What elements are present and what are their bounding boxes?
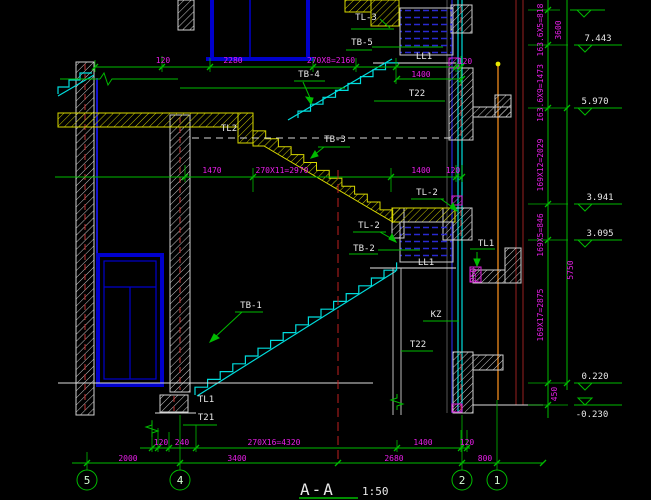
- elevation-symbols: [570, 10, 622, 405]
- mid-landing-slab: [392, 208, 455, 222]
- cad-section-drawing: 5421 TL-3TB-5LL1T22TB-4TL2TB-3TL-2TL-2TB…: [0, 0, 651, 500]
- dimension-label: 2280: [223, 56, 242, 65]
- dimension-label: 2000: [118, 454, 137, 463]
- dimension-label: 169X5=846: [536, 213, 545, 257]
- tb1-soffit: [197, 271, 396, 396]
- dimension-label: 120: [154, 438, 169, 447]
- stair-flights: [58, 59, 398, 396]
- grid-bubbles: 5421: [77, 470, 507, 490]
- upper-wall-stub: [178, 0, 194, 30]
- dimension-label: 250: [469, 268, 478, 283]
- dimension-label: 120: [446, 166, 461, 175]
- right-ledge-upper: [495, 95, 511, 117]
- dimension-label: 1400: [411, 166, 430, 175]
- component-label: TB-4: [298, 70, 320, 80]
- dimension-label: 120: [156, 56, 171, 65]
- slabs: [58, 0, 455, 222]
- windows: [98, 0, 314, 385]
- dimension-label: 270X8=2160: [307, 56, 355, 65]
- component-label: LL1: [418, 258, 434, 268]
- section-canvas: 5421 TL-3TB-5LL1T22TB-4TL2TB-3TL-2TL-2TB…: [0, 0, 651, 500]
- component-label: TL1: [198, 395, 214, 405]
- dimension-label: 1470: [202, 166, 221, 175]
- grid-bubble-label: 2: [459, 474, 466, 487]
- grid-bubble-label: 4: [177, 474, 184, 487]
- component-label: TB-1: [240, 301, 262, 311]
- dimension-label: 3600: [554, 20, 563, 39]
- stair-flight-tb1: [195, 262, 397, 395]
- component-label: T22: [409, 89, 425, 99]
- component-label: T22: [410, 340, 426, 350]
- component-label: TL-3: [355, 13, 377, 23]
- right-ledge-lower: [473, 355, 503, 370]
- component-label: TB-5: [351, 38, 373, 48]
- component-label: LL1: [416, 52, 432, 62]
- elevation-label: 5.970: [581, 97, 608, 107]
- mid-dashed-panel: [400, 222, 453, 262]
- dimension-label: 3400: [227, 454, 246, 463]
- dimension-label: 120: [458, 57, 473, 66]
- top-window: [206, 0, 314, 59]
- dimension-label: 800: [478, 454, 493, 463]
- elevation-label: -0.230: [576, 410, 609, 420]
- dimension-label: 1400: [413, 438, 432, 447]
- view-title: A-A 1:50: [299, 480, 389, 499]
- elevation-label: 7.443: [584, 34, 611, 44]
- dimension-label: 163.6X5=818: [536, 3, 545, 56]
- upper-dashed-panel: [400, 8, 453, 55]
- dimension-label: 450: [550, 387, 559, 402]
- pipe-top-marker: [496, 62, 501, 67]
- component-label: TL2: [221, 124, 237, 134]
- dimension-label: 2680: [384, 454, 403, 463]
- break-symbol: [146, 421, 158, 437]
- component-label: TB-2: [353, 244, 375, 254]
- dimension-label: 169X12=2029: [536, 138, 545, 191]
- dimension-label: 5750: [566, 260, 575, 279]
- dimension-label: 270X16=4320: [248, 438, 301, 447]
- tb4-soffit: [288, 59, 392, 120]
- elevation-label: 3.095: [586, 229, 613, 239]
- top-slab-band: [345, 0, 371, 12]
- second-floor-slab: [58, 113, 238, 127]
- section-scale: 1:50: [362, 485, 389, 498]
- elevation-label: 0.220: [581, 372, 608, 382]
- elevation-labels: 7.4435.9703.9413.0950.220-0.230: [576, 34, 614, 420]
- left-door-window: [98, 255, 162, 385]
- component-label: TL-2: [416, 188, 438, 198]
- dimension-label: 120: [460, 438, 475, 447]
- component-label: TL1: [478, 239, 494, 249]
- dimension-label: 270X11=2970: [256, 166, 309, 175]
- component-label: T21: [198, 413, 214, 423]
- component-label: TL-2: [358, 221, 380, 231]
- dimension-label: 1400: [411, 70, 430, 79]
- break-symbol: [100, 73, 116, 85]
- grid-bubble-label: 5: [84, 474, 91, 487]
- right-ledge-mid: [505, 248, 521, 283]
- kz-column: [393, 268, 401, 415]
- dimension-label: 169X17=2875: [536, 288, 545, 341]
- dimension-label: 240: [175, 438, 190, 447]
- component-label: TB-3: [324, 135, 346, 145]
- grid-bubble-label: 1: [494, 474, 501, 487]
- section-title: A-A: [300, 480, 335, 499]
- dimension-label: 163.6X9=1473: [536, 64, 545, 122]
- component-label: KZ: [431, 310, 442, 320]
- elevation-label: 3.941: [586, 193, 613, 203]
